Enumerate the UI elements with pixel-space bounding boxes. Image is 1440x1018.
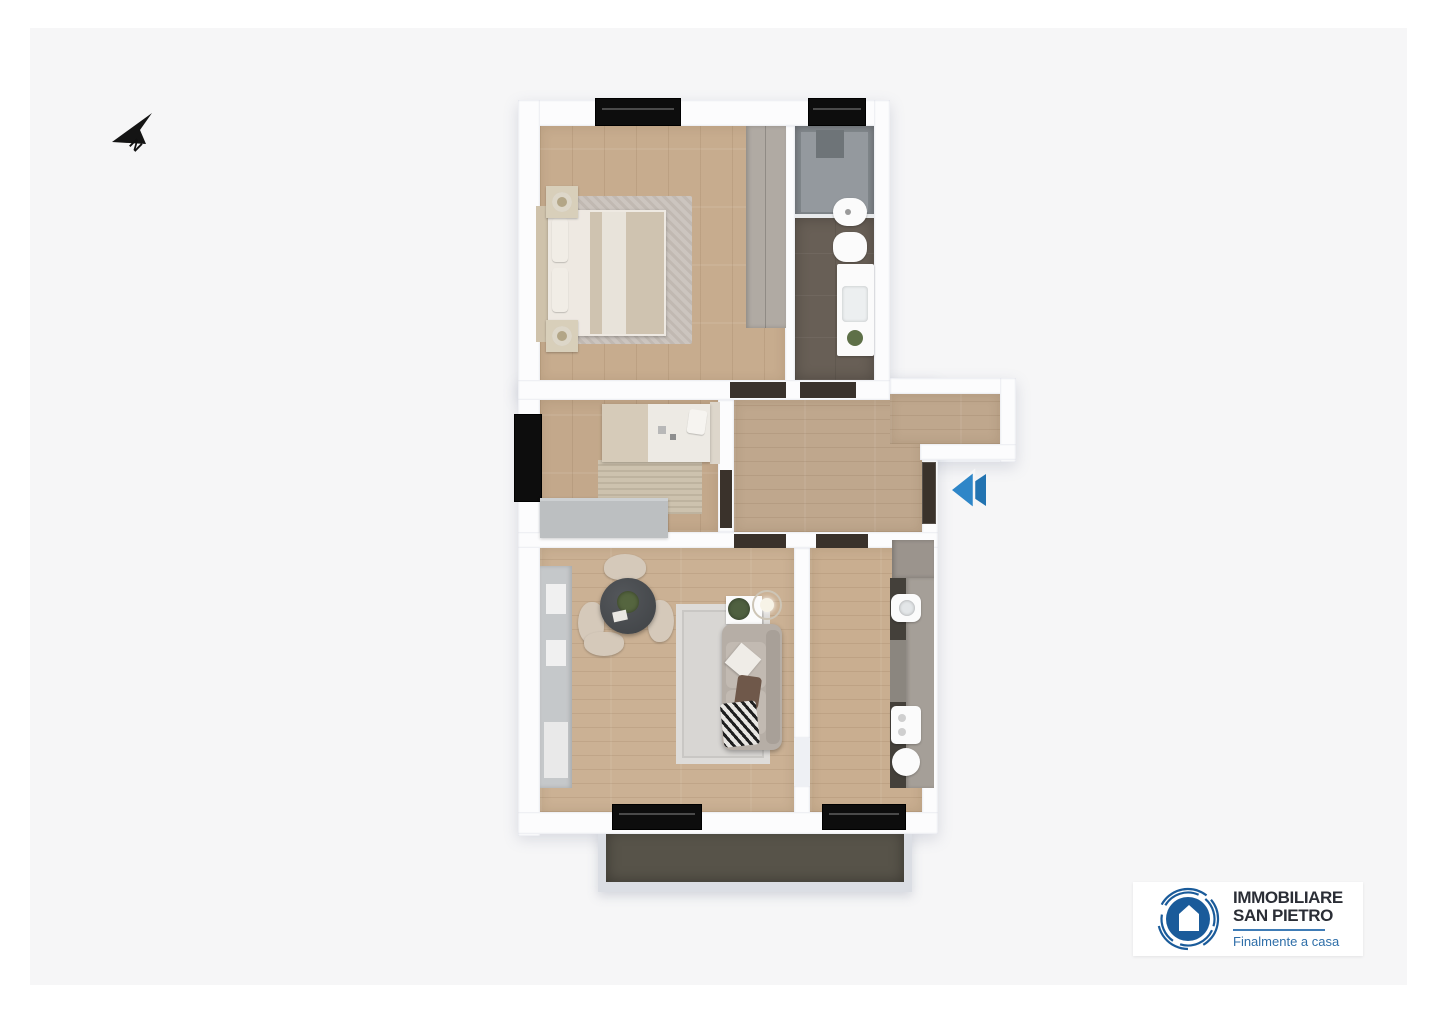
table-lamp — [552, 326, 572, 346]
room-balcony — [606, 830, 904, 882]
dining-chair — [584, 632, 624, 656]
bed-duvet-fold — [602, 212, 626, 334]
floor-lamp-shade — [760, 598, 774, 612]
wall-living-kitchen — [794, 548, 810, 738]
wall-living-kitchen-stub — [794, 786, 810, 814]
kitchen-counter-panel — [890, 640, 906, 702]
entrance-door — [922, 462, 936, 524]
door-second-bedroom — [720, 470, 732, 528]
balcony-frame — [598, 830, 912, 892]
sofa-backrest — [766, 630, 780, 744]
shower-head — [816, 130, 844, 158]
single-bed — [602, 404, 710, 462]
balcony-door-kitchen — [822, 804, 906, 830]
window-frame-line — [829, 813, 900, 815]
single-bed-headboard — [710, 402, 720, 464]
window-frame-line — [619, 813, 695, 815]
wall-bedroom-bathroom — [785, 126, 795, 382]
kitchen-cooktop — [891, 706, 921, 744]
bed-toy — [670, 434, 676, 440]
bed-pillow — [552, 268, 568, 312]
side-table-plant — [728, 598, 750, 620]
vanity-sink — [842, 286, 868, 322]
kitchen-sink — [891, 594, 921, 622]
hallway-niche — [890, 394, 1000, 444]
nightstand — [546, 186, 578, 218]
sofa-zebra-throw — [720, 700, 760, 748]
window-bathroom — [808, 98, 866, 126]
table-lamp — [552, 192, 572, 212]
window-frame-line — [602, 108, 674, 110]
bidet-drain — [845, 209, 851, 215]
brand-name-line1: IMMOBILIARE — [1233, 889, 1343, 907]
sink-bowl — [899, 600, 915, 616]
sofa — [722, 624, 782, 750]
sideboard — [540, 498, 668, 538]
dining-table — [600, 578, 656, 634]
wardrobe-divider — [765, 126, 766, 328]
table-card — [612, 610, 628, 623]
bed-toy — [658, 426, 666, 434]
balcony-door-living — [612, 804, 702, 830]
bathroom-vanity — [837, 264, 874, 356]
single-bed-pillow — [686, 409, 707, 435]
double-bed — [548, 210, 666, 336]
wall-niche-top — [890, 378, 1016, 394]
house-in-circle-icon — [1155, 886, 1221, 952]
floor-plan-page: N IMMOBILIARE SAN PIETRO Finalmente a ca… — [0, 0, 1440, 1018]
cooktop-burner — [898, 714, 906, 722]
bookcase-items — [546, 640, 566, 666]
bookcase — [540, 566, 572, 788]
kitchen-bowl — [892, 748, 920, 776]
wall-niche-bottom — [920, 444, 1016, 460]
cooktop-burner — [898, 728, 906, 736]
toilet — [833, 232, 867, 262]
brand-tagline: Finalmente a casa — [1233, 934, 1343, 949]
window-frame-line — [813, 108, 862, 110]
window-bedroom — [595, 98, 681, 126]
bathroom-plant — [847, 330, 863, 346]
door-living — [734, 534, 786, 548]
single-bed-blanket — [602, 404, 648, 462]
nightstand — [546, 320, 578, 352]
brand-divider — [1233, 929, 1325, 931]
brand-logo-card: IMMOBILIARE SAN PIETRO Finalmente a casa — [1133, 882, 1363, 956]
dining-chair — [604, 554, 646, 580]
brand-name-line2: SAN PIETRO — [1233, 907, 1343, 925]
window-second-bedroom — [514, 414, 542, 502]
bookcase-items — [546, 584, 566, 614]
floor-lamp — [752, 590, 782, 620]
door-kitchen — [816, 534, 868, 548]
bidet — [833, 198, 867, 226]
bed-pillow — [552, 218, 568, 262]
wall-bathroom-right — [874, 100, 890, 396]
brand-text-block: IMMOBILIARE SAN PIETRO Finalmente a casa — [1233, 889, 1343, 949]
bookcase-items — [544, 722, 568, 778]
double-chevron-left-icon — [946, 468, 990, 512]
door-bathroom — [800, 382, 856, 398]
wardrobe — [746, 126, 786, 328]
kitchen-tall-cabinet — [892, 540, 934, 578]
door-bedroom — [730, 382, 786, 398]
